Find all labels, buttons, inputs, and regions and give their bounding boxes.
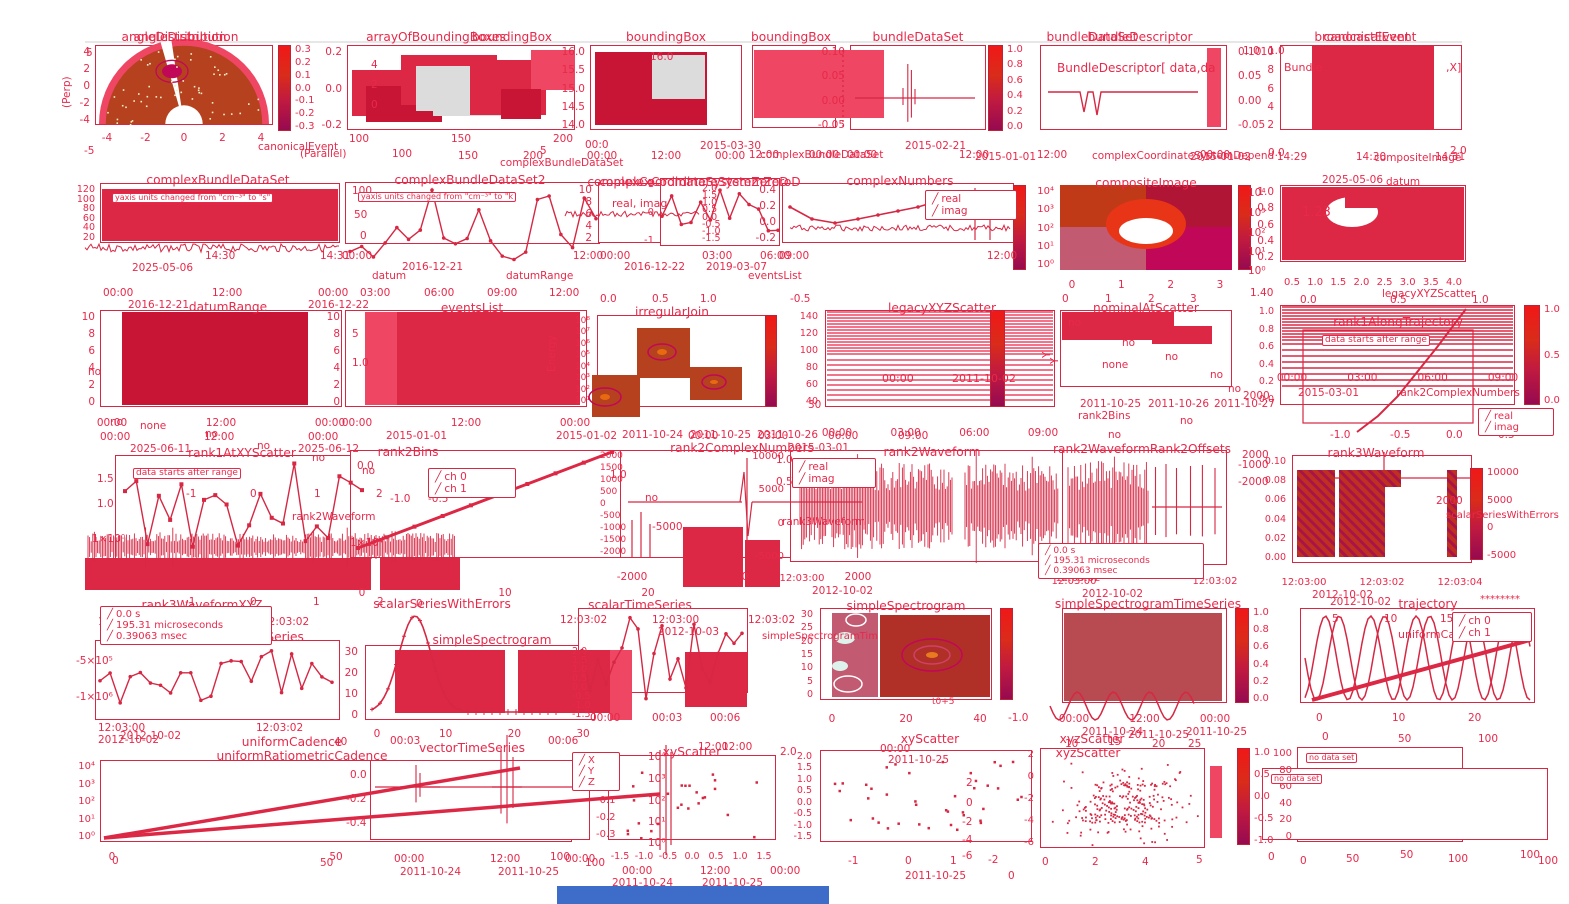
label: t0+5 [932,698,955,707]
ytick: 8 [1267,65,1274,76]
plot-title-rank1AlongTrajectory: rank1AlongTrajectory [1333,316,1463,329]
legend-item: ╱Z [579,777,613,788]
plot-title-compositeImage: compositeImage [1095,177,1196,190]
ytick: 1 [648,180,654,191]
legend-line-icon: ╱ [1045,546,1050,556]
colorbar-bundleDataSet-colorbar [988,45,1003,131]
label: BundleDescriptor[ data,da [1057,62,1215,75]
plot-frame-vectorTimeSeries [370,760,590,840]
legend-item: ╱imag [1485,422,1547,433]
ytick: 0 [600,500,606,509]
label: 0 [112,856,119,867]
ytick: 0.6 [1257,220,1274,231]
xtick: 0 [1069,280,1076,291]
plot-frame-rank3WaveformXYZ-scalarTimeSeries [95,640,340,720]
colorbar-tick: 0.2 [1253,677,1269,688]
plot-frame-bundleDescriptor [1040,45,1227,130]
xtick: 2 [219,133,226,144]
colorbar-tick: 0.4 [1253,660,1269,671]
xtick: 1.5 [756,852,771,862]
label: 10⁰ [648,838,666,849]
xtick: 00:00 [315,418,345,429]
xtick: 3 [1217,280,1224,291]
label: 00:03 [390,736,420,747]
ytick: 10³ [575,374,590,383]
plot-title-complexNumbers: complexNumbers [847,175,954,188]
legend-line-icon: ╱ [1459,615,1465,627]
label: 50 [320,858,333,869]
colorbar-legacyXYZScatter [990,310,1005,407]
ytick: 10 [327,312,340,323]
ytick: 8 [585,197,592,208]
label: -0.5 [790,294,811,305]
legend-line-icon: ╱ [1045,556,1050,566]
xtick: 12:00 [451,418,481,429]
ytick: -1.5 [702,234,721,244]
legend-rank2WaveformRank2Offsets: ╱0.0 s╱195.31 microseconds╱0.39063 msec [1038,543,1204,579]
xtick: 0 [829,714,836,725]
xtick: 0.5 [708,852,723,862]
label: 00:00 [308,432,338,443]
legend-rank2ComplexNumbers: ╱real╱imag [792,458,876,488]
label: 2015-02-21 [905,141,966,152]
colorbar-tick: -0.1 [295,96,315,107]
xtick: 00:00 [342,418,372,429]
plot-title-rank3Waveform: rank3Waveform [1328,447,1425,460]
ytick: 2 [1267,120,1274,131]
label: 10¹ [648,817,666,828]
ytick: 10⁴ [1037,187,1054,198]
plot-title-rank1AtXYScatter: rank1AtXYScatter [188,447,296,460]
label: 1 [950,856,957,867]
ytick: 20 [801,637,813,647]
label: 2025-06-11 [130,444,191,455]
label: 100 [1538,856,1558,867]
legend-item: ╱ch 0 [1459,615,1525,627]
ytick: 20 [345,668,358,679]
plot-title-rank2Bins: rank2Bins [378,446,439,459]
xtick: 0.5 [1284,278,1300,289]
label: -5 [84,146,94,157]
label: rank3Waveform [782,517,865,528]
ytick: 0.0 [797,798,812,808]
label: 15 [1108,737,1121,748]
label: 12:00 [212,288,242,299]
ytick: 0.4 [1257,236,1274,247]
plot-frame-datum [1280,185,1466,262]
ytick: 2000 [600,452,623,461]
label: data starts after range [1322,335,1430,346]
label: 0 [360,231,367,242]
legend-line-icon: ╱ [1485,411,1491,422]
label: datumRange [506,271,573,282]
label: 20 [1468,713,1481,724]
label: 50 [1398,734,1411,745]
ytick: 10⁰ [1037,260,1054,271]
ytick: 0 [88,397,95,408]
legend-line-icon: ╱ [932,193,938,205]
legend-item: ╱imag [932,205,1010,217]
label: 2015-03-01 [1298,388,1359,399]
xtick: 2 [1167,280,1174,291]
label: 2 [1148,294,1155,305]
colorbar-xyzScatter [1237,748,1250,845]
xtick: 2.0 [1353,278,1369,289]
label: 1.40 [1250,288,1273,299]
colorbar-tick: 0.5 [1544,351,1560,362]
legend-item: ╱0.0 s [1045,546,1197,556]
label: 03:00 [758,431,788,442]
ytick: 6 [333,346,340,357]
label: 06:00 [828,431,858,442]
ytick: 8 [88,329,95,340]
label: 2011-10-26 [1148,399,1209,410]
legend-item: ╱real [1485,411,1547,422]
ytick: 14.0 [562,120,585,131]
xtick: 10 [439,729,452,740]
ytick: 10 [579,185,592,196]
plot-title-scalarSeriesWithErrors: scalarSeriesWithErrors [373,598,511,611]
label: 2025-05-06 [1322,175,1383,186]
colorbar-tick: 1.0 [1254,748,1270,759]
label: 30 [808,400,821,411]
label: -4 [962,835,972,846]
label: scalarSeriesWithErrors [1446,511,1559,522]
label: 1.0 [1243,46,1260,57]
ytick: 60 [806,380,818,390]
ytick: 10⁰ [78,832,95,843]
legend-line-icon: ╱ [799,461,805,473]
xtick: 12:00 [651,151,681,162]
label: 2016-12-21 [128,300,189,311]
label: 00:00 [882,373,914,385]
label: 0.0 [1300,295,1317,306]
legend-line-icon: ╱ [1485,422,1491,433]
label: compositeImage [1374,153,1461,164]
plot-title-broadcastEvent: canonicalEvent [1324,31,1417,44]
ytick: 10¹ [575,397,590,406]
plot-title-uniformRatiometricCadence: uniformCadence [242,736,342,749]
label: 00:00 [103,288,133,299]
plot-frame-nominalAtScatter [1060,310,1232,387]
label: 0.5 [652,294,669,305]
legend-line-icon: ╱ [579,755,585,766]
xtick: 12:03:02 [1360,578,1405,589]
xtick: 0 [742,572,749,583]
ytick: 4 [333,363,340,374]
label: 0 [1268,852,1275,863]
label: -1.0 [390,494,411,505]
xtick: 100 [349,134,369,145]
label: datum [1386,177,1420,188]
colorbar-tick: 0.0 [295,84,311,95]
plot-frame-broadcastEvent [1280,45,1462,130]
legend-item: ╱ch 1 [435,483,509,495]
label: 2015-01-01 [386,431,447,442]
label: -1×10⁶ [76,692,113,703]
colorbar-tick: 0.1 [295,71,311,82]
label: 1 [1105,294,1112,305]
label: 0 [1300,856,1307,867]
ytick: 15.0 [562,84,585,95]
xtick: 0 [374,729,381,740]
label: 1.0 [352,358,369,369]
plot-title-bundleDataSet: bundleDataSet [873,31,964,44]
colorbar-tick: 0.8 [1253,625,1269,636]
xtick: 06:00 [1418,373,1448,384]
plot-title-trajectory-uniformCadence: trajectory [1398,598,1457,611]
ytick: 30 [801,610,813,620]
label: 0.5 [1390,295,1407,306]
label: data starts after range [133,468,241,479]
label: 50 [1400,850,1413,861]
ytick: 0 [333,397,340,408]
ytick: 10² [1037,224,1054,235]
ytick: 0.08 [1265,476,1286,486]
xtick: 00:00 [1059,714,1089,725]
ytick: -2000 [600,548,626,557]
plot-title-datumRange: datumRange [189,301,267,314]
xtick: 20 [899,714,912,725]
xtick: -2000 [617,572,648,583]
label: 2015-01-02 [556,431,617,442]
label: canonicalEvent [258,142,338,153]
colorbar-angleDistribution [278,45,291,131]
xtick: 00:00 [587,151,617,162]
ytick: 16.0 [562,47,585,58]
plot-frame-xyScatter [608,755,776,840]
ytick: 0.2 [325,47,342,58]
ytick: 15.5 [562,65,585,76]
label: 12:00 [549,288,579,299]
xtick: 00:00 [560,418,590,429]
colorbar-tick: 5000 [1487,496,1512,507]
label: 10² [648,796,666,807]
legend-trajectory-uniformCadence: ╱ch 0╱ch 1 [1452,612,1532,642]
label: 2015-03-01 [788,443,849,454]
label: 0 [1008,871,1015,882]
label: 16.0 [650,52,673,63]
legend-rank1AlongTrajectory: ╱real╱imag [1478,408,1554,436]
label: 2012-10-03 [658,627,719,638]
label: 2011-10-24 [622,430,683,441]
label: 10³ [648,774,666,785]
ytick: 80 [806,363,818,373]
xtick: 1.0 [1307,278,1323,289]
label: 1.0 [1472,295,1489,306]
xtick: 09:00 [1028,428,1058,439]
xtick: 12:03:00 [1282,578,1327,589]
colorbar-irregularJoin [765,315,777,407]
label: 2 [1092,857,1099,868]
label: 12:03:02 [748,615,795,626]
label: 10⁰ [1248,266,1266,277]
ytick: 10 [345,689,358,700]
label: 4 [1142,857,1149,868]
plot-title-uniformRatiometricCadence: uniformRatiometricCadence [217,750,388,763]
ytick: 0.00 [1265,553,1286,563]
plot-title-arrayOfBoundingBoxes: boundingBox [472,31,552,44]
colorbar-simpleSpectrogramTimeSeries [1235,608,1249,703]
label: 2011-10-25 [1128,730,1189,741]
ytick: 0.0 [1259,395,1274,405]
colorbar-tick: 0.0 [1254,792,1270,803]
ytick: -0.2 [596,813,616,824]
legend-complexNumbers: ╱real╱imag [925,190,1017,220]
ytick: 14.5 [562,102,585,113]
plot-title-rank2Waveform: rank2Waveform [884,446,981,459]
label: 00:00 [100,432,130,443]
xtick: -1.0 [635,852,654,862]
ytick: 0.00 [822,96,845,107]
label: 0 [1042,857,1049,868]
ytick: 0.5 [797,786,812,796]
label: 10 [1384,614,1397,625]
label: 5 [1196,855,1203,866]
label: 1.0 [776,455,793,466]
ytick: 10 [801,663,813,673]
label: 50 [1346,854,1359,865]
colorbar-tick: 0.0 [1544,396,1560,407]
xtick: 09:00 [1488,373,1518,384]
ytick: 0.0 [325,84,342,95]
label: no [1165,352,1178,363]
label: no [88,367,101,378]
label: -1.0 [1330,430,1351,441]
label: 12:03:00 [652,615,699,626]
ytick: 6 [1267,84,1274,95]
label: ******** [1480,595,1520,606]
label: real, imag [612,198,667,210]
plot-title-simpleSpectrogramTimeSeries: simpleSpectrogramTimeSeries [1055,598,1241,611]
colorbar-tick: -0.2 [295,109,315,120]
label: datum [372,271,406,282]
xtick: -1.5 [611,852,630,862]
xtick: 00:00 [715,151,745,162]
label: 2012-10-02 [812,586,873,597]
xtick: 2000 [845,572,872,583]
label: no [1122,338,1135,349]
ytick: 10³ [1037,205,1054,216]
label: 0 [371,100,378,111]
label: 10 [1065,739,1078,750]
label: 09:00 [898,431,928,442]
label: -6 [962,851,972,862]
label: 00:00 [770,866,800,877]
label: 100 [1478,734,1498,745]
label: 0.0 [600,294,617,305]
legend-line-icon: ╱ [579,777,585,788]
ytick: 0.04 [1265,515,1286,525]
legend-item: ╱ch 1 [1459,627,1525,639]
label: -1 [848,856,858,867]
xtick: 3.0 [1400,278,1416,289]
plot-frame-rank3Waveform [1292,455,1472,563]
ytick: -500 [600,512,620,521]
label: 00:00 [590,713,620,724]
ytick: 6 [88,346,95,357]
xtick: 40 [973,714,986,725]
plot-title-angleDistribution: angleDistribution [122,31,227,44]
ytick: 2 [585,233,592,244]
label: 2011-10-24 [400,867,461,878]
label: 1.5 [97,474,114,485]
ytick: 10⁶ [575,340,590,349]
colorbar-tick: 0 [1487,523,1493,534]
ytick: 20 [1279,815,1292,826]
label: Y [1050,358,1061,364]
label: 2011-10-25 [498,867,559,878]
label: 5 [352,329,359,340]
label: 00:03 [652,713,682,724]
label: 10 [1392,713,1405,724]
ytick: 100 [1273,749,1292,760]
ytick: 100 [800,346,818,356]
label: 00:00 [394,854,424,865]
ytick: -4 [1024,816,1034,827]
label: 100 [1448,854,1468,865]
label: 1×10⁰ [92,534,125,545]
label: rank2Bins [1078,411,1130,422]
legend-line-icon: ╱ [1045,566,1050,576]
ytick: 0.05 [822,71,845,82]
label: 00:00 [565,854,595,865]
ytick: 120 [800,329,818,339]
ytick: 4 [1267,102,1274,113]
legend-line-icon: ╱ [107,609,113,620]
ytick: -0.05 [1238,120,1265,131]
label: -5×10⁵ [76,656,113,667]
ytick: -2 [80,98,90,109]
xtick: 1.5 [1330,278,1346,289]
label: 2016-12-22 [308,300,369,311]
ytick: -1 [644,236,654,247]
ytick: 500 [600,488,617,497]
ytick: 0 [1028,772,1034,783]
plot-title-bundleDescriptor: bundleDescriptor [1087,31,1192,44]
label: 00:06 [548,736,578,747]
label: -0.5 [1390,430,1411,441]
legend-item: ╱imag [799,473,869,485]
xtick: 20 [508,729,521,740]
label: 14:30 [205,251,235,262]
xtick: 12:00 [573,251,603,262]
plot-frame-irregularJoin [597,315,772,407]
label: 2015-01-01 [975,152,1036,163]
label: 2025-05-06 [132,263,193,274]
ytick: -1500 [600,536,626,545]
xtick: 3.5 [1423,278,1439,289]
plot-title-eventsList: eventsList [441,302,503,315]
ytick: 10⁵ [575,351,590,360]
legend-line-icon: ╱ [435,471,441,483]
label: 1.0 [610,470,627,481]
label: Energy [547,335,558,372]
legend-line-icon: ╱ [579,766,585,777]
label: -0.4 [346,818,367,829]
label: 2011-10-25 [888,755,949,766]
colorbar-tick: 0.0 [1253,694,1269,705]
ytick: 2 [88,380,95,391]
colorbar-tick: -0.5 [1254,814,1274,825]
label: 2000 [1436,496,1463,507]
label: yaxis units changed from "cm⁻³" to "k [358,192,516,202]
colorbar-tick: 1.0 [1544,305,1560,316]
legend-rank2Bins: ╱ch 0╱ch 1 [428,468,516,498]
label: 2011-10-02 [952,373,1016,385]
ytick: 10¹ [1037,242,1054,253]
label: 2016-12-22 [624,262,685,273]
